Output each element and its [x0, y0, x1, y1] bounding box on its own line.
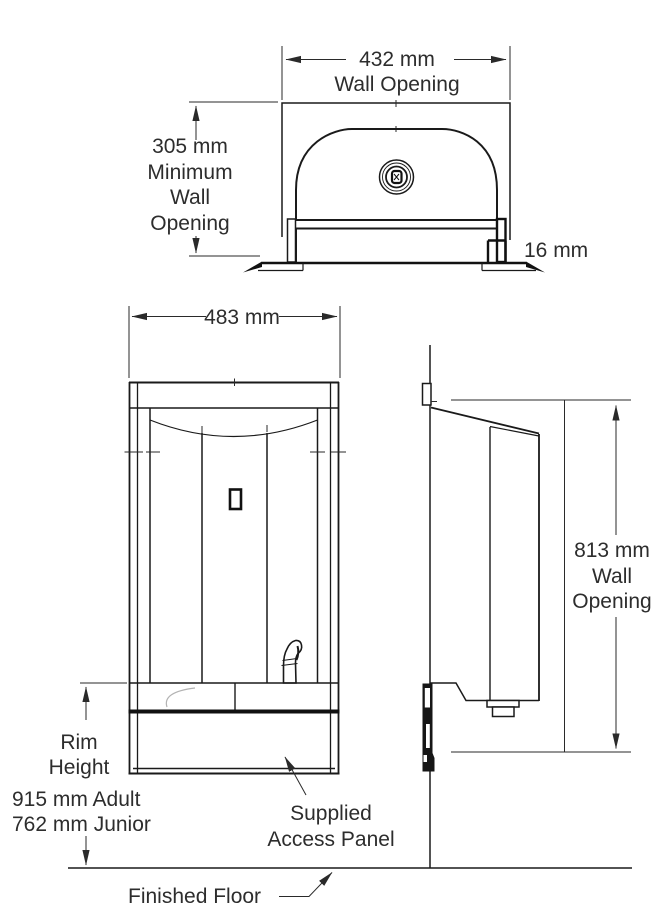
basin-outline [296, 129, 497, 220]
leader-arrow [285, 757, 306, 795]
dim-305-l4: Opening [150, 212, 229, 235]
dimension-unit-width: 483 mm [129, 306, 340, 378]
hood-slope [431, 408, 539, 434]
top-view [243, 100, 545, 273]
installation-drawing: 432 mm Wall Opening 305 mm Minimum Wall … [0, 0, 672, 920]
drain-fitting-flange [487, 701, 519, 708]
access-panel-l2: Access Panel [267, 828, 394, 851]
mounting-clip-icon [423, 384, 432, 406]
drain-fitting-body [493, 707, 515, 717]
front-view [125, 379, 347, 774]
pushbutton-icon [230, 490, 241, 510]
finished-floor: Finished Floor [68, 868, 632, 908]
dim-305-l2: Minimum [147, 161, 232, 184]
dimension-wall-opening-width: 432 mm Wall Opening [282, 46, 510, 100]
panel-junction-ticks [202, 425, 267, 433]
bubbler-icon [282, 640, 302, 683]
dim-432-value: 432 mm [359, 48, 435, 71]
rim-height-l1: Rim [60, 731, 97, 754]
finished-floor-label: Finished Floor [128, 885, 261, 908]
dim-813-l2: Wall [592, 565, 632, 588]
access-panel-l1: Supplied [290, 802, 372, 825]
drain-icon [380, 160, 414, 194]
side-view [423, 345, 540, 868]
body-bottom [430, 683, 539, 701]
rim-height-junior: 762 mm Junior [12, 813, 151, 836]
dimension-wall-opening-height: 813 mm Wall Opening [451, 400, 652, 752]
dim-305-l1: 305 mm [152, 135, 228, 158]
dimension-flange-offset: 16 mm [488, 239, 588, 262]
basin-lower-sides [296, 228, 497, 262]
dimension-min-wall-opening: 305 mm Minimum Wall Opening [147, 102, 278, 256]
dim-813-l3: Opening [572, 590, 651, 613]
access-panel-side-edge [423, 684, 435, 772]
installation-drawing-page: 432 mm Wall Opening 305 mm Minimum Wall … [0, 0, 672, 920]
basin-back-rail [296, 220, 497, 229]
left-mounting-bracket [288, 219, 296, 262]
dim-483-value: 483 mm [204, 306, 280, 329]
dim-813-l1: 813 mm [574, 539, 650, 562]
faint-drain-mark [166, 688, 195, 707]
outer-frame-sides [130, 382, 339, 774]
back-panel-sides [202, 433, 267, 683]
wall-flange [243, 262, 545, 273]
dim-432-caption: Wall Opening [334, 73, 459, 96]
rim-height-adult: 915 mm Adult [12, 788, 141, 811]
bowl-front-edge [150, 420, 318, 437]
rim-height-l2: Height [49, 756, 110, 779]
leader-arrow [279, 873, 332, 897]
dim-305-l3: Wall [170, 186, 210, 209]
inner-frame-sides [138, 382, 331, 774]
dim-16-value: 16 mm [524, 239, 588, 262]
